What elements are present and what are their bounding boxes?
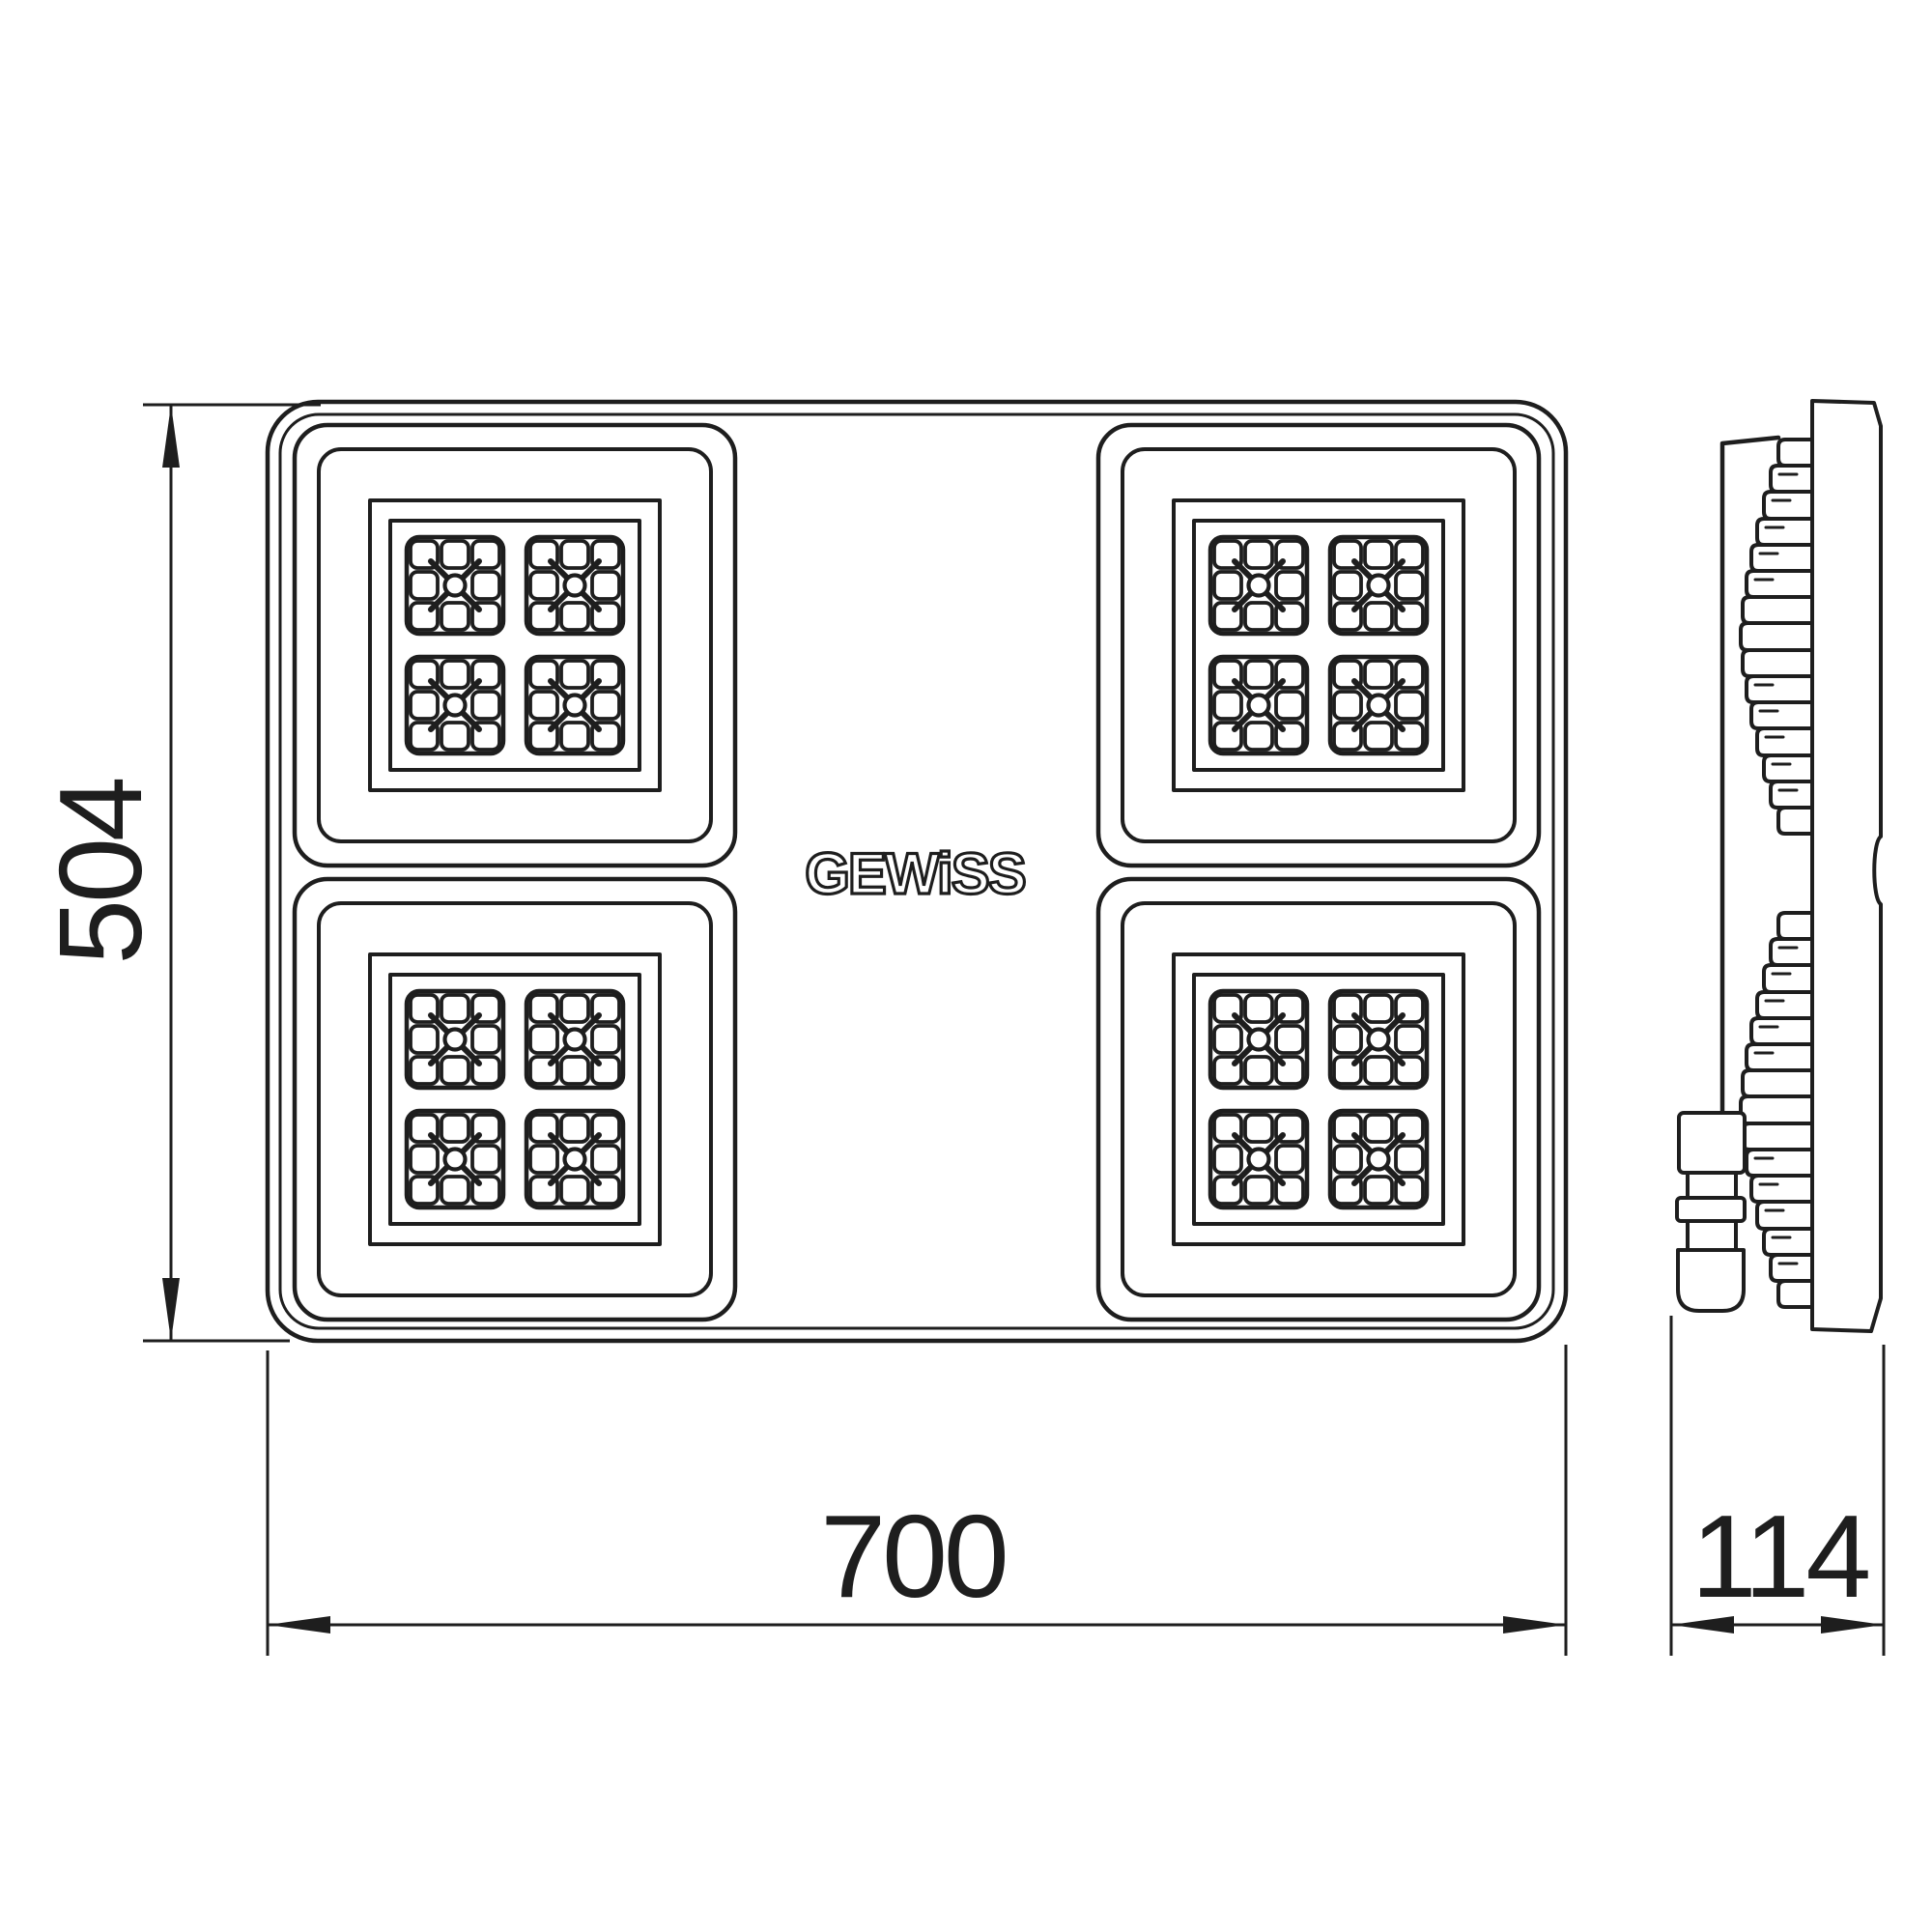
arrowhead-down xyxy=(162,1278,180,1341)
cable-gland xyxy=(1677,1113,1745,1311)
floodlight-technical-drawing: GEWiSS 504 700 xyxy=(0,0,1932,1932)
dimension-width: 700 xyxy=(268,1345,1566,1656)
back-plate xyxy=(1722,438,1778,1118)
arrowhead-up xyxy=(162,405,180,468)
gland-cap xyxy=(1678,1250,1744,1311)
dimension-height: 504 xyxy=(35,405,321,1341)
heatsink-fins-upper xyxy=(1741,440,1810,834)
gland-bracket xyxy=(1679,1113,1745,1173)
led-module-bottom-left xyxy=(295,879,735,1320)
dimension-label-height: 504 xyxy=(35,779,166,965)
gewiss-logo: GEWiSS xyxy=(805,841,1025,906)
dimension-depth: 114 xyxy=(1671,1316,1884,1656)
gland-neck-lower xyxy=(1688,1221,1736,1250)
drawing-canvas: GEWiSS 504 700 xyxy=(0,0,1932,1932)
arrowhead-left xyxy=(268,1616,330,1634)
front-view: GEWiSS xyxy=(268,402,1566,1341)
led-module-top-right xyxy=(1098,425,1539,866)
gland-neck-upper xyxy=(1688,1173,1736,1198)
led-module-bottom-right xyxy=(1098,879,1539,1320)
arrowhead-right xyxy=(1503,1616,1566,1634)
dimension-label-depth: 114 xyxy=(1691,1491,1869,1622)
front-face-profile xyxy=(1812,401,1881,1331)
dimension-label-width: 700 xyxy=(820,1491,1006,1622)
gland-flange xyxy=(1677,1198,1745,1221)
led-module-top-left xyxy=(295,425,735,866)
heatsink-fins-lower xyxy=(1741,913,1810,1307)
side-view xyxy=(1677,401,1881,1331)
